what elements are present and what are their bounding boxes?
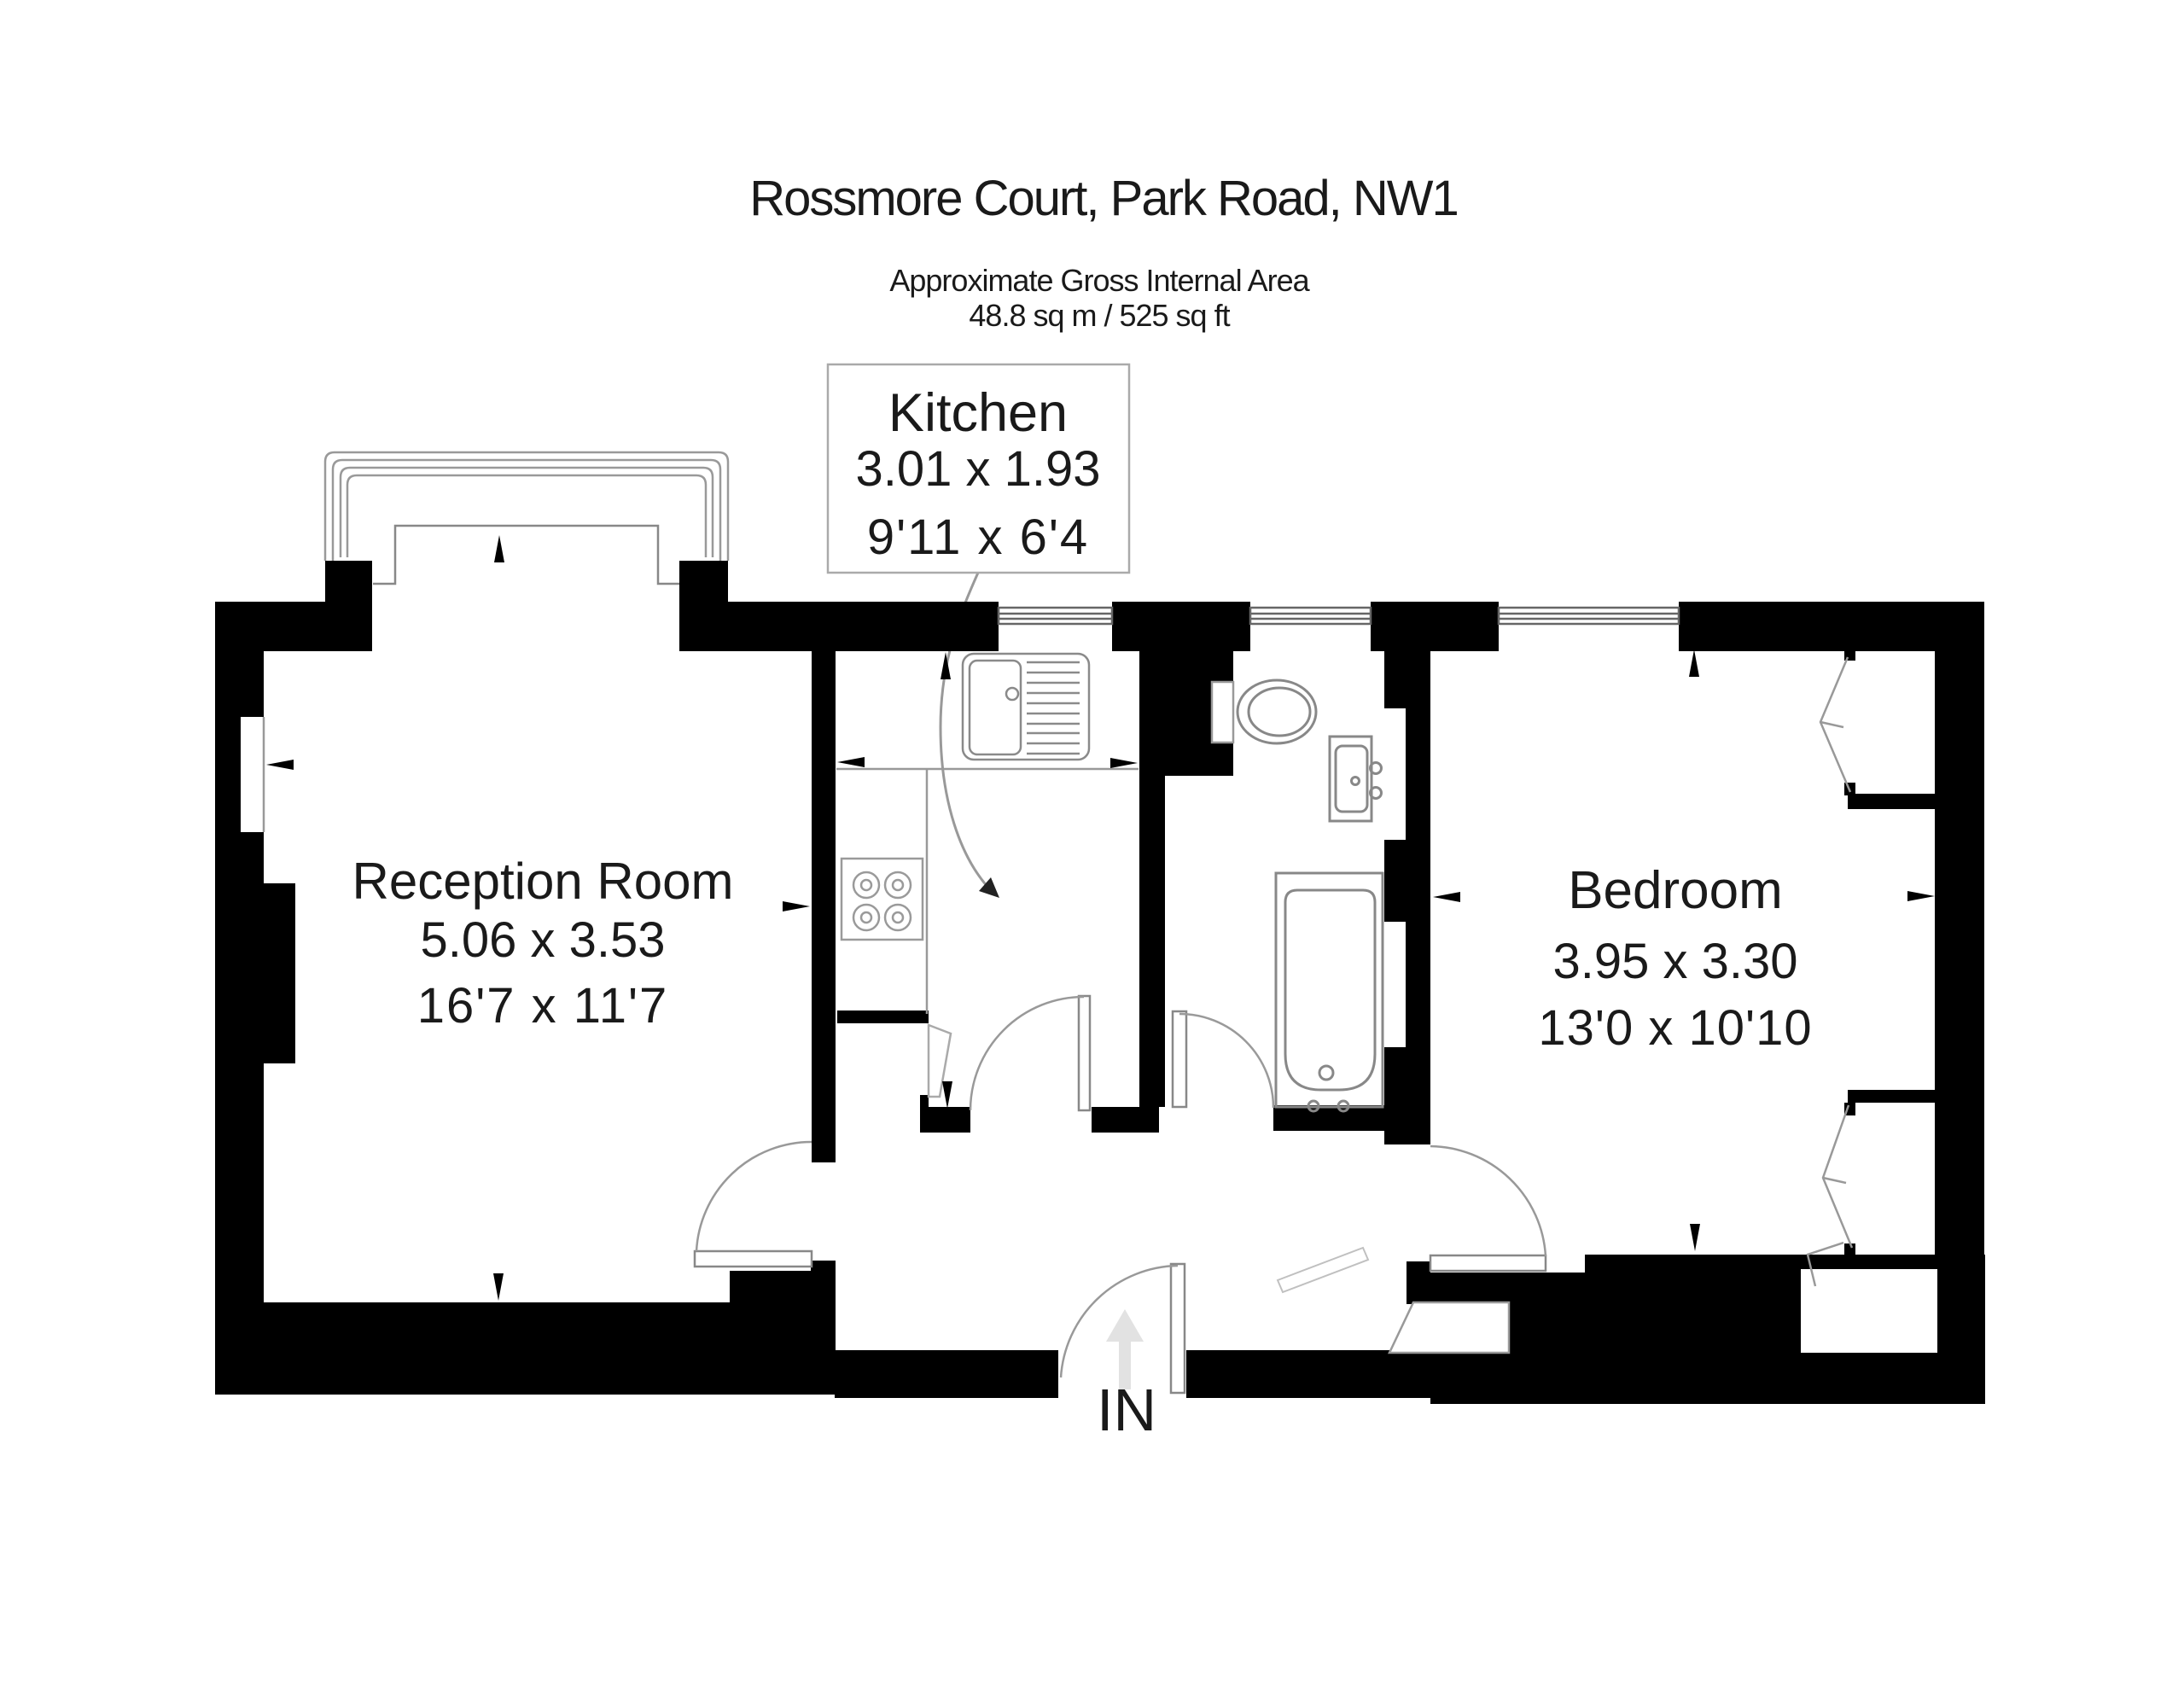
svg-text:16'7 x 11'7: 16'7 x 11'7 [417,978,669,1034]
svg-text:48.8 sq m / 525 sq ft: 48.8 sq m / 525 sq ft [969,298,1230,333]
svg-text:Reception Room: Reception Room [352,853,734,910]
svg-text:Bedroom: Bedroom [1568,861,1783,920]
svg-text:IN: IN [1097,1377,1156,1443]
svg-text:Rossmore Court, Park Road, NW1: Rossmore Court, Park Road, NW1 [749,171,1458,226]
svg-text:3.01 x 1.93: 3.01 x 1.93 [856,441,1101,497]
svg-text:9'11 x 6'4: 9'11 x 6'4 [867,510,1089,565]
svg-text:3.95 x 3.30: 3.95 x 3.30 [1553,934,1798,989]
svg-text:5.06 x 3.53: 5.06 x 3.53 [421,912,666,968]
svg-text:Approximate Gross Internal Are: Approximate Gross Internal Area [889,263,1310,298]
svg-text:13'0 x 10'10: 13'0 x 10'10 [1538,1000,1812,1056]
svg-text:Kitchen: Kitchen [888,383,1068,443]
